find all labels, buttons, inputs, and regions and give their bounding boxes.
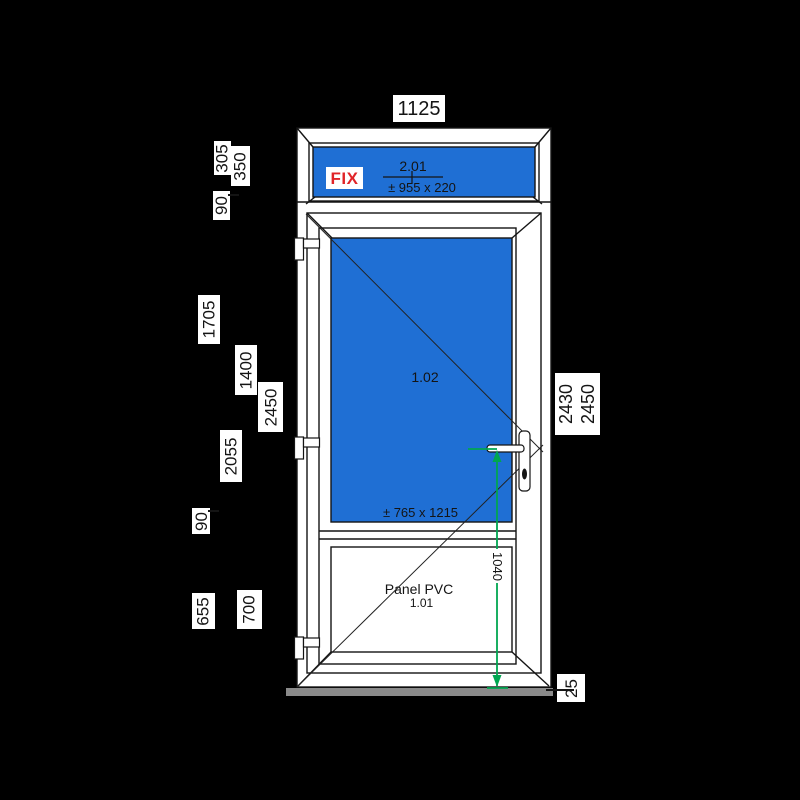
dim-total-height-left: 2450 <box>258 382 283 432</box>
transom-code: 2.01 <box>391 158 435 174</box>
door-glass-code: 1.02 <box>409 369 441 385</box>
dimension-tick <box>208 510 219 512</box>
dim-total-width-value: 1125 <box>397 99 440 119</box>
transom-glass-size: ± 955 x 220 <box>384 180 460 194</box>
keyhole-icon <box>522 469 527 480</box>
dim-below-transom: 2055 <box>220 430 242 482</box>
door-glass-size: ± 765 x 1215 <box>381 505 460 520</box>
dim-total-height-right: 2450 <box>577 373 600 435</box>
dimension-tick <box>228 194 239 196</box>
dim-total-width: 1125 <box>393 95 445 122</box>
fix-tag: FIX <box>326 167 363 189</box>
dim-threshold-height: 25 <box>557 674 585 702</box>
dim-top-to-rail: 1705 <box>198 295 220 344</box>
dimension-tick <box>546 689 574 691</box>
dim-leaf-height: 2430 <box>555 373 577 435</box>
threshold-bar <box>286 688 553 696</box>
dim-transom-section: 350 <box>231 146 250 186</box>
dim-panel-section: 700 <box>237 590 262 629</box>
panel-label: Panel PVC <box>384 581 454 597</box>
dim-panel-zone: 655 <box>192 593 215 629</box>
dim-door-glass-section: 1400 <box>235 345 257 395</box>
dim-transom-glass-zone: 305 <box>214 141 231 175</box>
dim-handle-height: 1040 <box>489 549 506 583</box>
drawing-canvas: 1125 305 350 90 1705 1400 2450 2055 90 6… <box>0 0 800 800</box>
panel-code: 1.01 <box>409 596 434 609</box>
